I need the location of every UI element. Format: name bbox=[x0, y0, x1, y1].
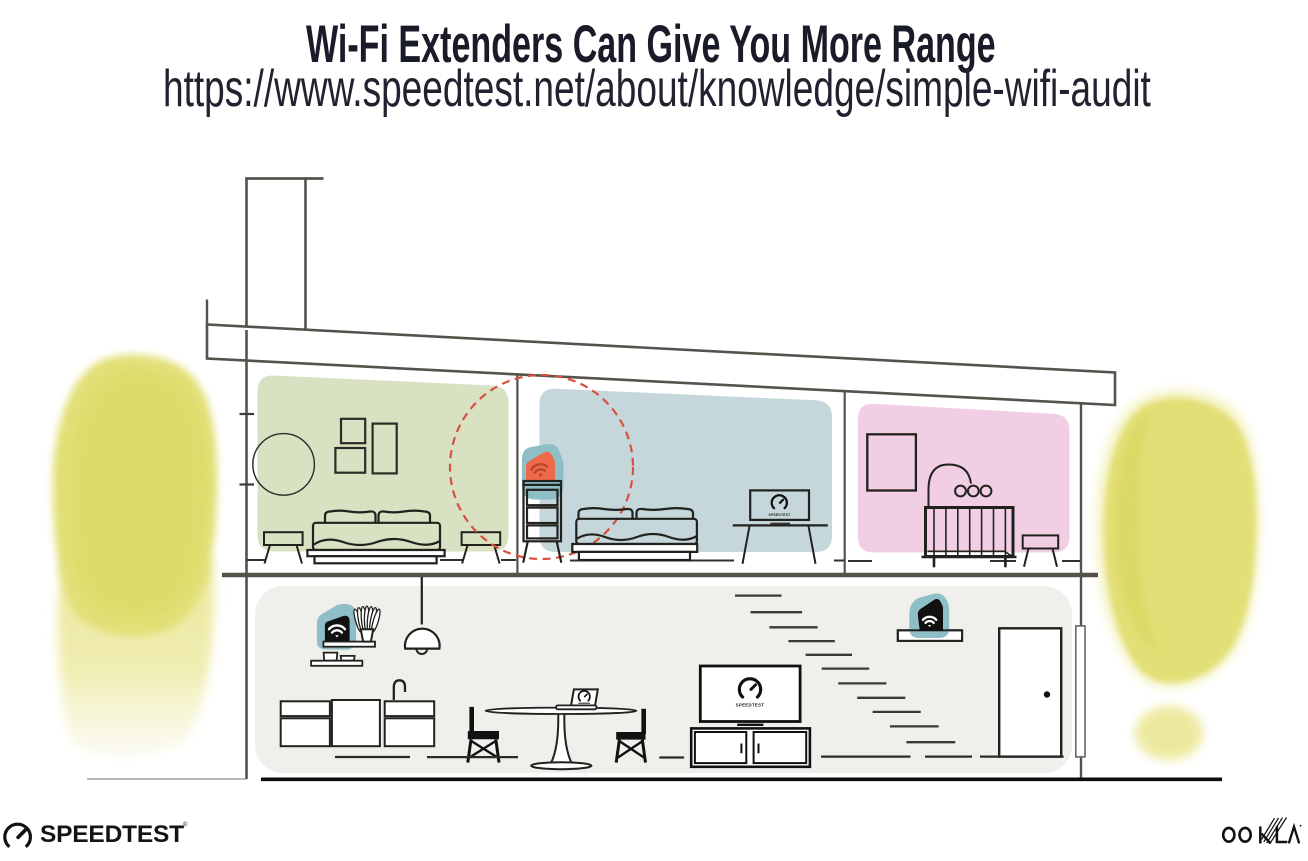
svg-text:SPEEDTEST: SPEEDTEST bbox=[736, 703, 765, 708]
svg-text:®: ® bbox=[183, 822, 188, 829]
svg-text:SPEEDTEST: SPEEDTEST bbox=[769, 513, 792, 517]
svg-text:SPEEDTEST: SPEEDTEST bbox=[40, 821, 184, 848]
